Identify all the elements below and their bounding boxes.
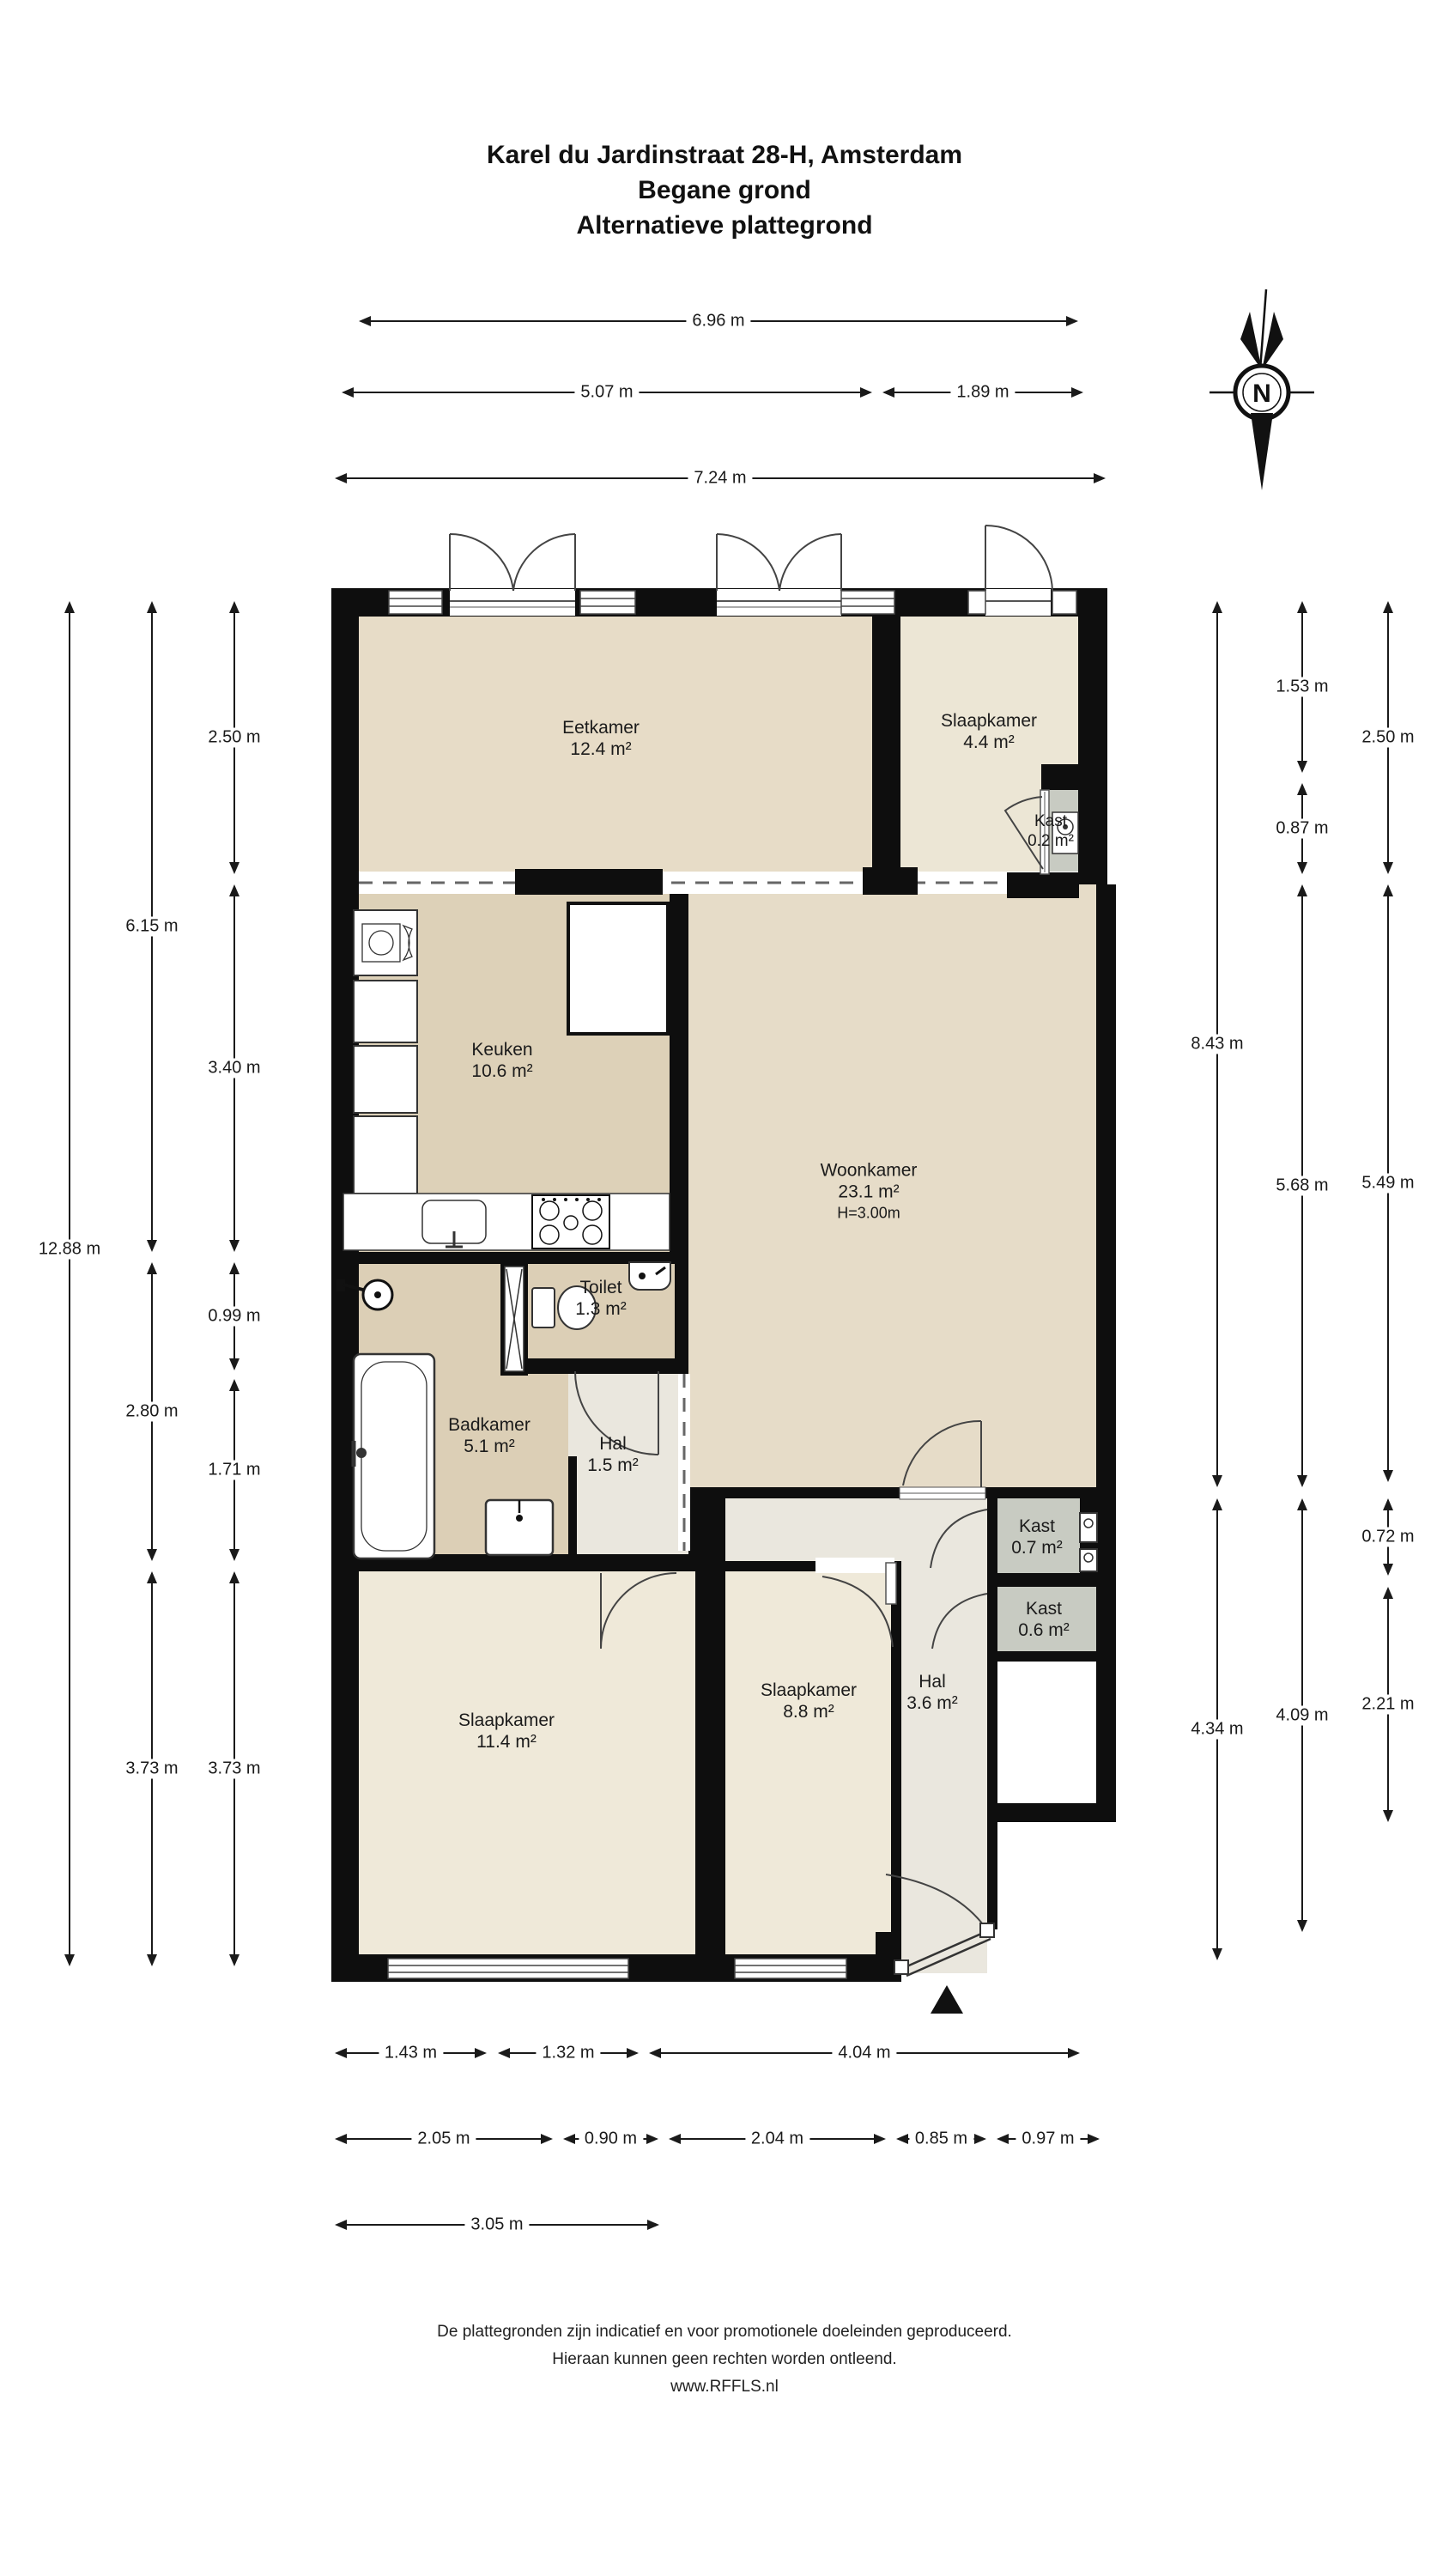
label-toilet: Toilet1.3 m²: [575, 1277, 627, 1320]
compass: N: [1197, 288, 1326, 494]
label-woonkamer: Woonkamer23.1 m² H=3.00m: [821, 1160, 918, 1224]
label-slaapkamer-midden: Slaapkamer8.8 m²: [761, 1680, 857, 1722]
hob-icon: [532, 1195, 609, 1249]
entrance-arrow-icon: [931, 1985, 963, 2014]
bathtub-icon: [354, 1354, 434, 1558]
entrance-door: [886, 1874, 994, 1976]
dim-bottom-085: 0.85 m: [896, 2132, 986, 2146]
label-keuken: Keuken10.6 m²: [471, 1039, 532, 1082]
french-doors-eetkamer-2: [717, 534, 841, 591]
dim-right-568: 5.68 m: [1295, 884, 1309, 1487]
dim-left-373a: 3.73 m: [145, 1571, 159, 1966]
label-slaapkamer-klein: Slaapkamer4.4 m²: [941, 710, 1037, 753]
disclaimer: De plattegronden zijn indicatief en voor…: [0, 2318, 1449, 2401]
dim-right-087: 0.87 m: [1295, 783, 1309, 874]
bathroom-sink-icon: [486, 1500, 553, 1555]
door-slaapkamer-klein: [985, 526, 1052, 591]
dim-top-right-part: 1.89 m: [882, 386, 1083, 399]
label-kast07: Kast0.7 m²: [1011, 1516, 1063, 1558]
compass-needle: [1251, 413, 1273, 490]
dim-bottom-204: 2.04 m: [669, 2132, 886, 2146]
dim-bottom-132: 1.32 m: [498, 2046, 639, 2060]
dim-left-total: 12.88 m: [63, 601, 76, 1966]
french-door-opening-2: [717, 589, 841, 616]
dim-left-615: 6.15 m: [145, 601, 159, 1252]
disclaimer-line2: Hieraan kunnen geen rechten worden ontle…: [0, 2346, 1449, 2373]
compass-north-label: N: [1252, 380, 1271, 408]
label-kast02: Kast0.2 m²: [1028, 811, 1074, 851]
french-door-opening-1: [450, 589, 575, 616]
shaft-icon: [505, 1267, 524, 1371]
door-kast06: [932, 1594, 987, 1649]
single-door-opening: [985, 589, 1051, 616]
dim-right-221: 2.21 m: [1381, 1587, 1395, 1822]
dim-top-width-outer: 7.24 m: [335, 471, 1106, 485]
door-woonkamer: [900, 1421, 985, 1499]
dim-bottom-205: 2.05 m: [335, 2132, 553, 2146]
label-slaapkamer-groot: Slaapkamer11.4 m²: [458, 1710, 555, 1753]
dim-right-549: 5.49 m: [1381, 884, 1395, 1482]
dim-right-250: 2.50 m: [1381, 601, 1395, 874]
french-doors-eetkamer-1: [450, 534, 575, 591]
compass-wing-right: [1262, 312, 1283, 370]
label-hal-klein: Hal1.5 m²: [587, 1433, 639, 1476]
dim-bottom-404: 4.04 m: [649, 2046, 1080, 2060]
dim-top-width-inner: 6.96 m: [359, 314, 1078, 328]
door-slaapkamer-midden: [815, 1558, 896, 1647]
washing-machine-icon: [354, 910, 417, 975]
title-variant: Alternatieve plattegrond: [0, 208, 1449, 243]
label-kast06: Kast0.6 m²: [1018, 1598, 1070, 1641]
dim-right-843: 8.43 m: [1210, 601, 1224, 1487]
disclaimer-line1: De plattegronden zijn indicatief en voor…: [0, 2318, 1449, 2346]
door-kast07: [931, 1510, 987, 1568]
toilet-sink-icon: [629, 1262, 670, 1290]
kitchen-island: [568, 903, 668, 1034]
dim-right-434: 4.34 m: [1210, 1498, 1224, 1960]
window-bottom-1: [388, 1959, 628, 1978]
dim-top-left-part: 5.07 m: [342, 386, 872, 399]
kitchen-cabinet-icons: [354, 981, 417, 1194]
window-top-2: [580, 591, 635, 614]
dim-left-373b: 3.73 m: [227, 1571, 241, 1966]
floorplan-page: Karel du Jardinstraat 28-H, Amsterdam Be…: [0, 0, 1449, 2576]
window-bottom-2: [735, 1959, 846, 1978]
disclaimer-url: www.RFFLS.nl: [0, 2373, 1449, 2401]
dim-right-409: 4.09 m: [1295, 1498, 1309, 1932]
door-slaapkamer-groot: [601, 1573, 676, 1649]
compass-wing-left: [1240, 312, 1262, 370]
dim-left-171: 1.71 m: [227, 1379, 241, 1561]
window-top-3: [841, 591, 894, 614]
title-floor: Begane grond: [0, 173, 1449, 208]
kitchen-counter: [343, 1194, 670, 1250]
dim-bottom-143: 1.43 m: [335, 2046, 487, 2060]
title-address: Karel du Jardinstraat 28-H, Amsterdam: [0, 137, 1449, 173]
label-eetkamer: Eetkamer12.4 m²: [562, 717, 640, 760]
meter-box-icons: [1080, 1513, 1097, 1571]
label-badkamer: Badkamer5.1 m²: [448, 1414, 530, 1457]
dim-bottom-097: 0.97 m: [997, 2132, 1100, 2146]
dim-left-340: 3.40 m: [227, 884, 241, 1252]
shower-icon: [336, 1279, 392, 1309]
dim-bottom-305: 3.05 m: [335, 2218, 659, 2232]
page-title: Karel du Jardinstraat 28-H, Amsterdam Be…: [0, 137, 1449, 243]
dim-left-250: 2.50 m: [227, 601, 241, 874]
dim-left-280: 2.80 m: [145, 1262, 159, 1561]
label-hal-groot: Hal3.6 m²: [906, 1671, 958, 1714]
dim-right-153: 1.53 m: [1295, 601, 1309, 773]
dim-right-072: 0.72 m: [1381, 1498, 1395, 1576]
window-top-1: [389, 591, 442, 614]
dim-left-099: 0.99 m: [227, 1262, 241, 1370]
dim-bottom-090: 0.90 m: [563, 2132, 658, 2146]
